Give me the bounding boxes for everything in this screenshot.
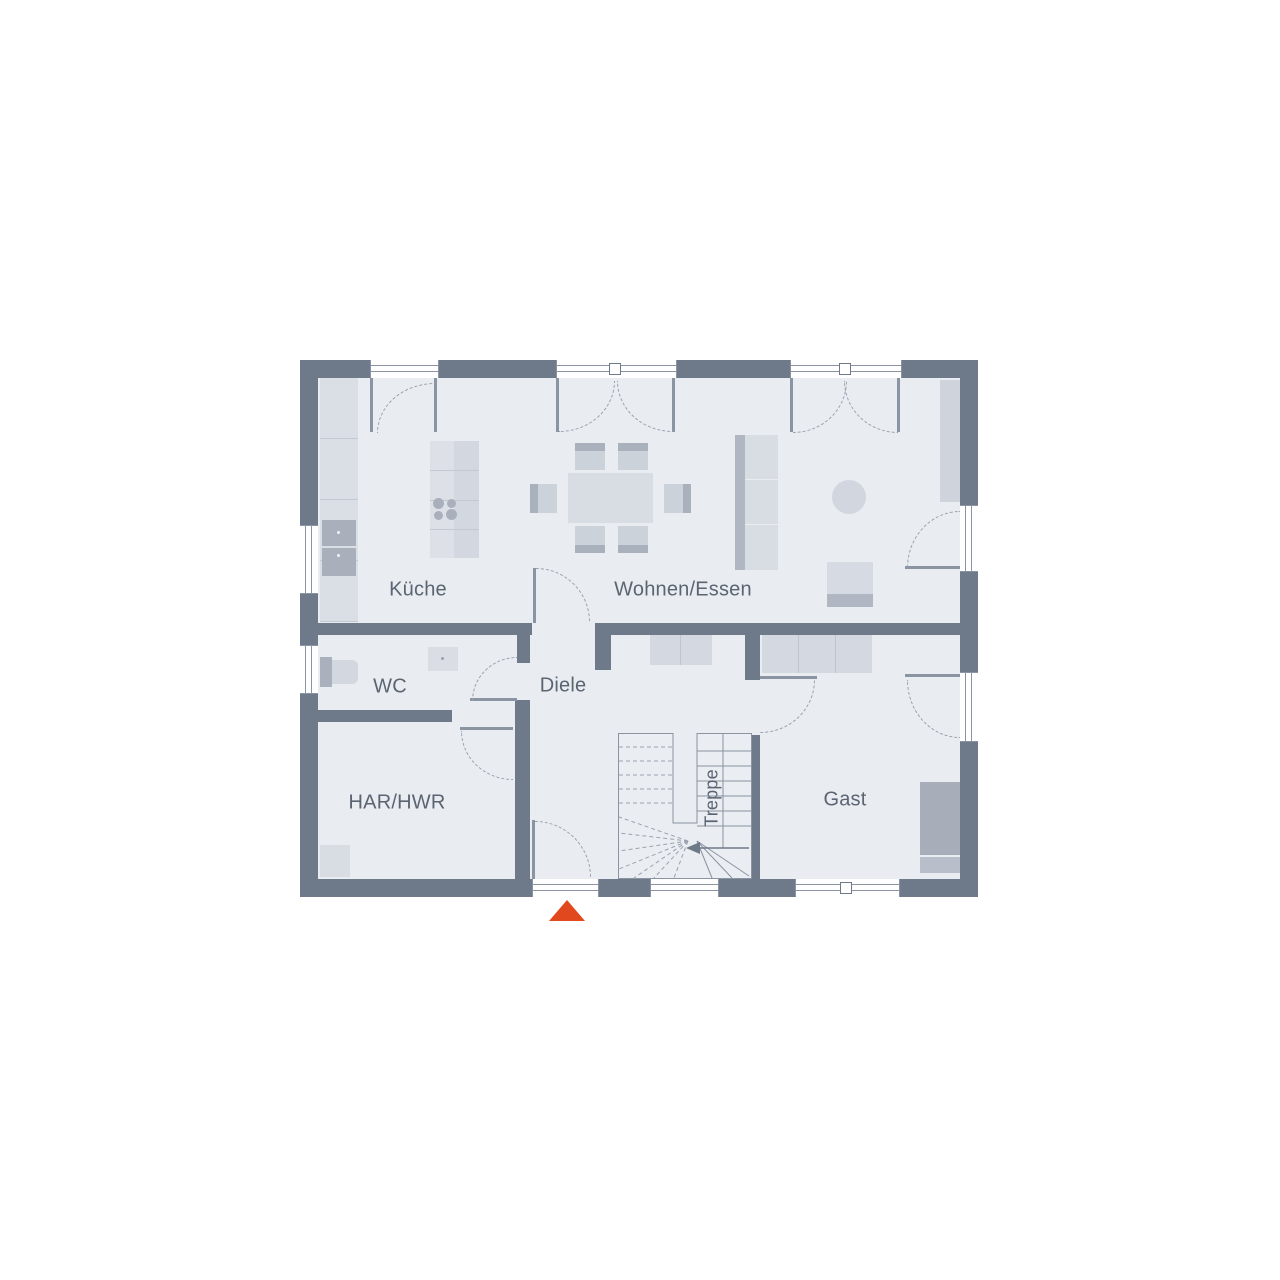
bed-gast-foot <box>920 857 960 873</box>
room-label-treppe: Treppe <box>702 769 723 827</box>
room-label-wc: WC <box>373 676 407 699</box>
dining-chair <box>575 443 605 470</box>
terrace-door-gast-right <box>960 672 978 742</box>
stove <box>322 548 356 576</box>
room-label-kueche: Küche <box>389 579 447 602</box>
window-kitchen <box>300 525 318 594</box>
toilet-bowl <box>332 660 358 684</box>
window-wc <box>300 645 318 694</box>
cooktop-burner <box>433 498 444 509</box>
wall-exterior-left <box>300 360 318 897</box>
bed-gast <box>920 782 960 855</box>
door-leaf-gast-right <box>905 674 960 677</box>
toilet-tank <box>320 657 332 687</box>
cooktop-burner <box>446 509 457 520</box>
window-stairwell <box>650 879 719 897</box>
room-label-har-hwr: HAR/HWR <box>349 792 446 815</box>
utility-unit <box>320 845 350 877</box>
door-center-marker <box>609 363 621 375</box>
terrace-door-kitchen <box>370 360 439 378</box>
armchair <box>827 562 873 607</box>
dining-chair <box>530 484 557 513</box>
dining-table <box>568 473 653 523</box>
sideboard-living <box>940 380 960 502</box>
kitchen-counter <box>320 378 358 622</box>
cooktop-burner <box>447 499 456 508</box>
kitchen-island <box>430 441 479 558</box>
room-label-wohnen-essen: Wohnen/Essen <box>614 579 752 602</box>
dining-chair <box>618 526 648 553</box>
wall-wc-har <box>318 710 452 722</box>
sofa <box>735 435 778 570</box>
dining-chair <box>618 443 648 470</box>
staircase <box>618 733 752 879</box>
wc-sink <box>428 647 458 671</box>
wall-living-hall <box>597 623 960 635</box>
cooktop-burner <box>434 511 443 520</box>
oven <box>322 520 356 546</box>
room-label-gast: Gast <box>823 789 866 812</box>
dining-chair <box>575 526 605 553</box>
entrance-arrow <box>549 900 585 921</box>
wall-wc-hall-upper <box>517 635 530 663</box>
door-center-marker <box>839 363 851 375</box>
room-label-diele: Diele <box>540 675 587 698</box>
sideboard-hall <box>650 635 712 665</box>
door-leaf-gast <box>760 676 817 679</box>
wall-har-hall <box>515 700 530 879</box>
door-leaf-har <box>460 727 513 730</box>
entry-door <box>532 879 599 897</box>
wardrobe-gast <box>762 635 872 673</box>
wall-kitchen-wc <box>318 623 532 635</box>
terrace-door-living-right <box>960 505 978 572</box>
wall-hall-gast-upper <box>745 623 760 680</box>
wall-stub-hall <box>595 623 611 670</box>
round-table <box>832 480 866 514</box>
door-center-marker <box>840 882 852 894</box>
floor-plan: Küche Wohnen/Essen WC Diele HAR/HWR Gast… <box>300 360 978 897</box>
door-jamb <box>370 378 373 432</box>
wall-exterior-right <box>960 360 978 897</box>
dining-chair <box>664 484 691 513</box>
